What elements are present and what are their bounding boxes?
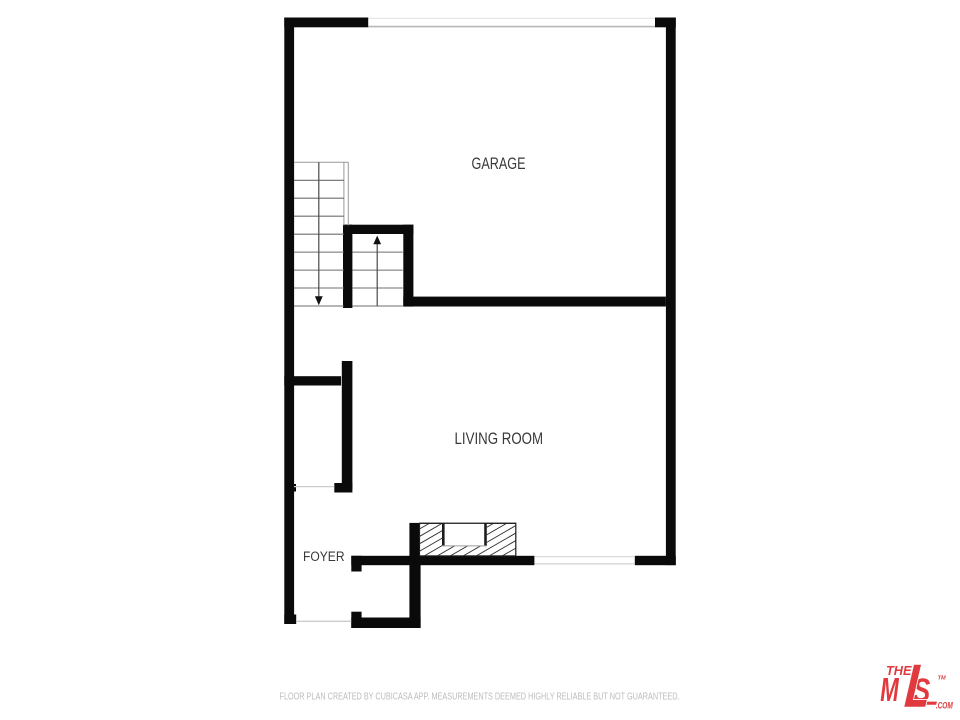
svg-text:FOYER: FOYER	[303, 549, 345, 565]
svg-text:FLOOR PLAN CREATED BY CUBICASA: FLOOR PLAN CREATED BY CUBICASA APP. MEAS…	[280, 692, 680, 703]
svg-text:GARAGE: GARAGE	[472, 155, 526, 173]
svg-text:M: M	[880, 672, 899, 709]
svg-text:.COM: .COM	[936, 700, 953, 710]
svg-text:TM: TM	[938, 676, 946, 682]
svg-text:LIVING ROOM: LIVING ROOM	[455, 430, 544, 448]
